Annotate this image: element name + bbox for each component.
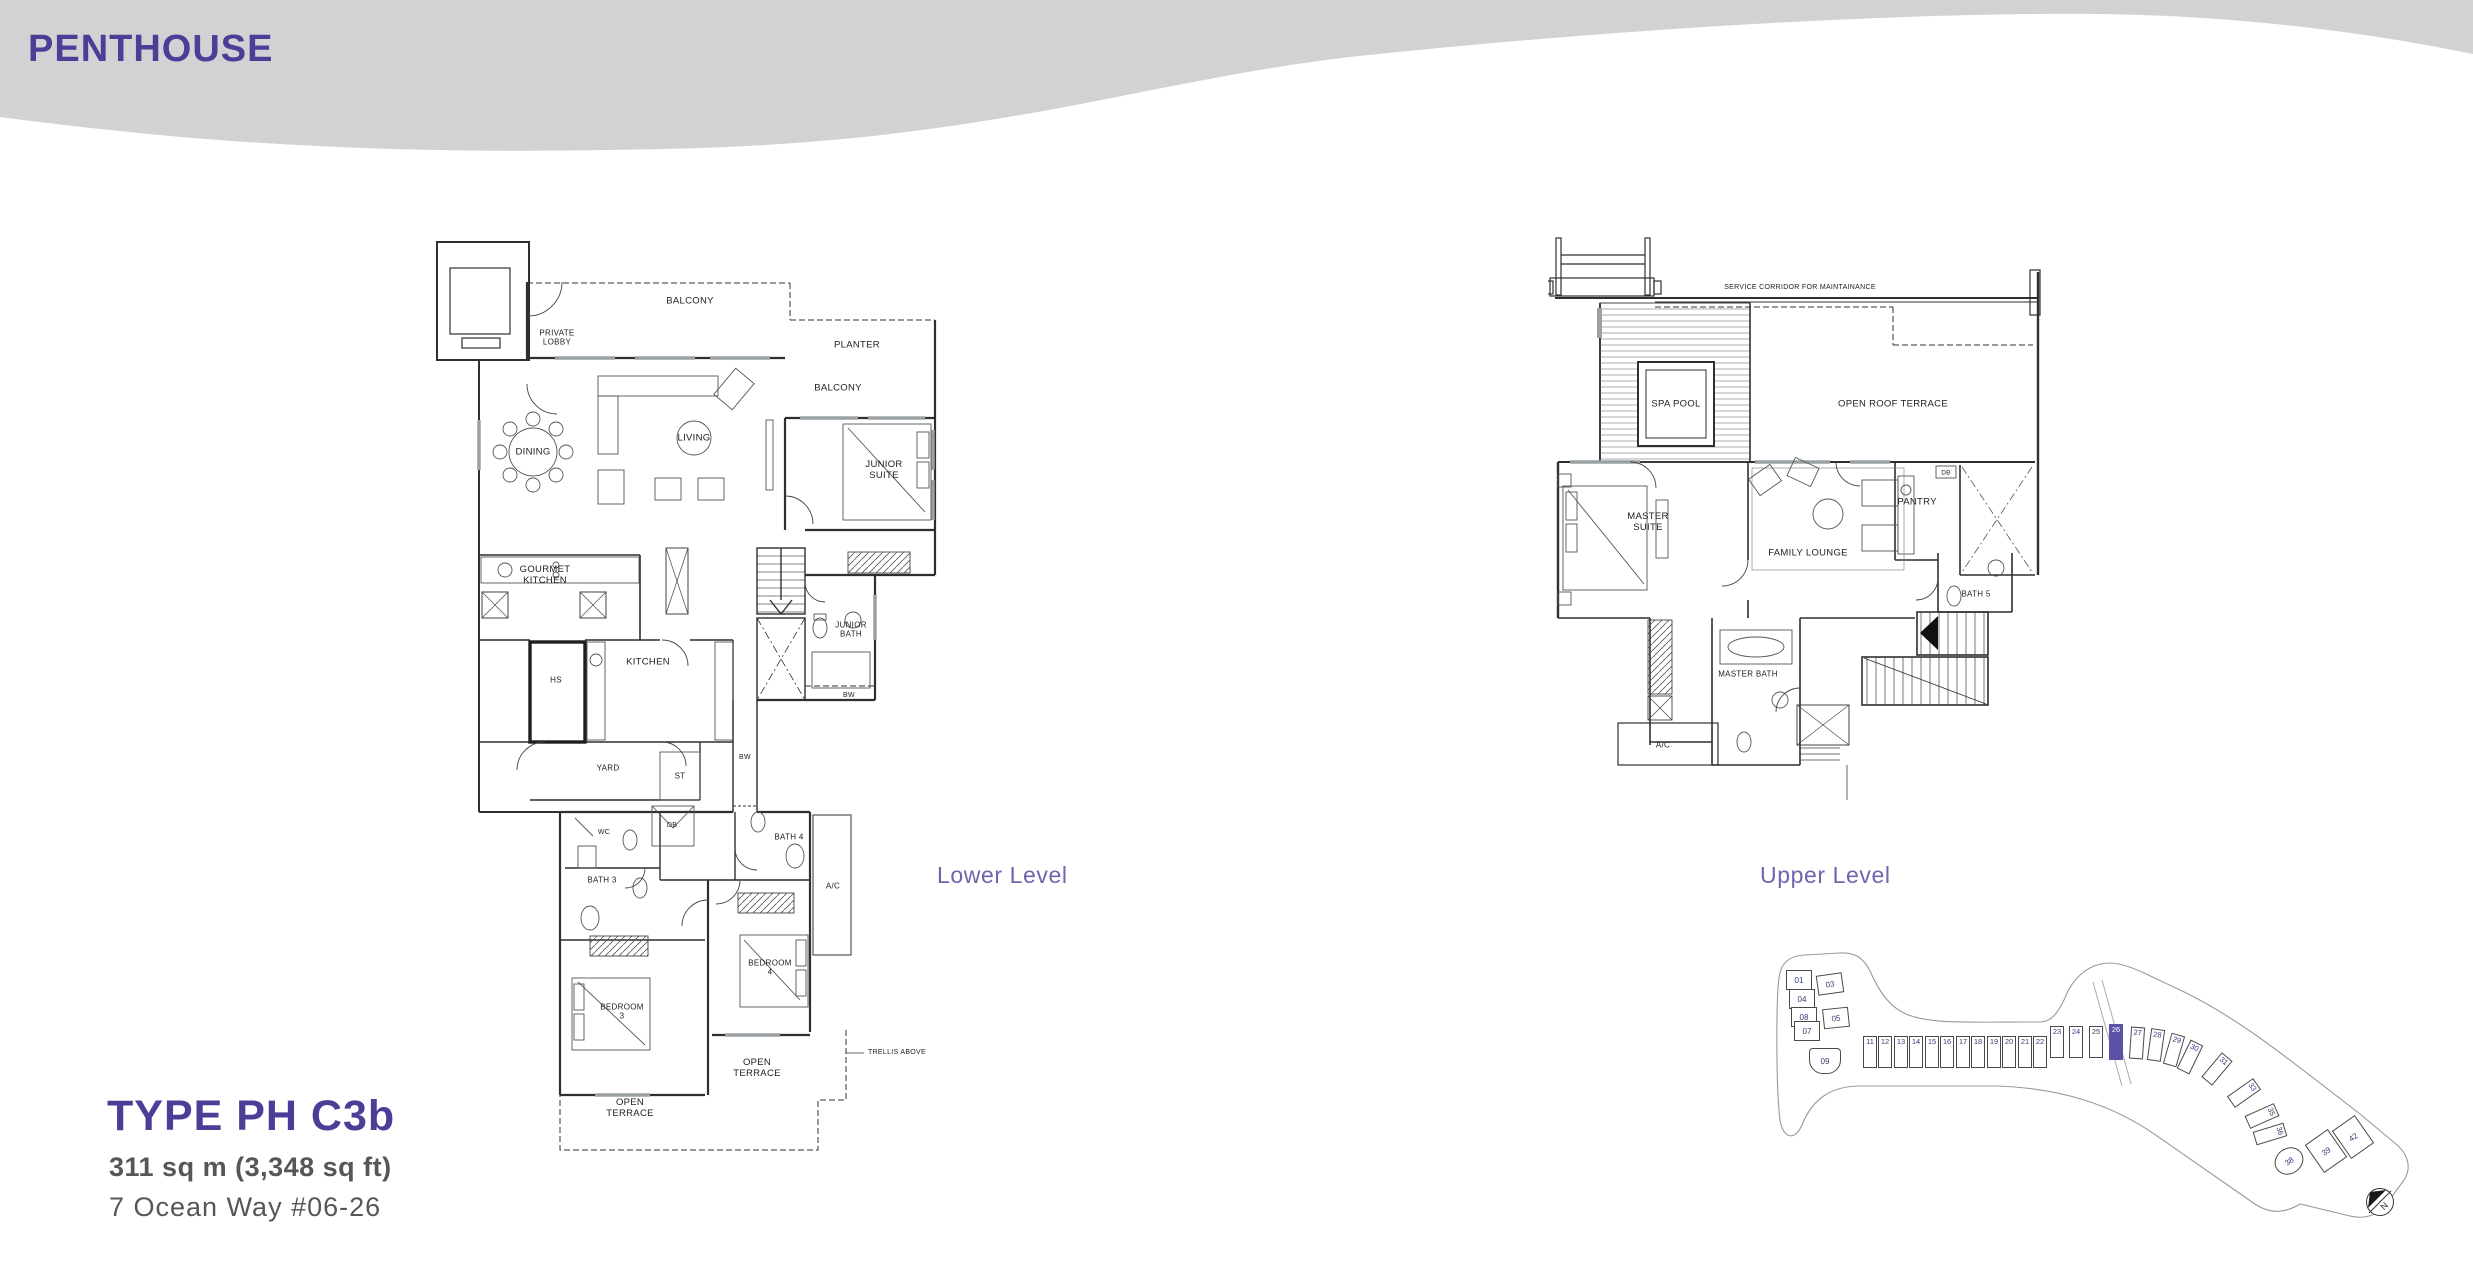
room-label-service-corridor: SERVICE CORRIDOR FOR MAINTAINANCE bbox=[1724, 284, 1876, 292]
room-label-dining: DINING bbox=[515, 446, 550, 457]
site-unit: 19 bbox=[1987, 1036, 2001, 1068]
room-label-master-suite: MASTER SUITE bbox=[1627, 511, 1668, 533]
site-unit: 14 bbox=[1909, 1036, 1923, 1068]
annotation-trellis-above: TRELLIS ABOVE bbox=[868, 1049, 926, 1057]
room-label-pantry: PANTRY bbox=[1897, 496, 1936, 507]
room-label-bw-corridor: BW bbox=[739, 754, 751, 762]
site-unit: 05 bbox=[1822, 1007, 1850, 1030]
room-label-bath3: BATH 3 bbox=[587, 875, 616, 884]
lower-level-caption: Lower Level bbox=[937, 862, 1068, 889]
room-label-st: ST bbox=[675, 771, 686, 780]
site-unit: 13 bbox=[1894, 1036, 1908, 1068]
room-label-master-bath: MASTER BATH bbox=[1718, 669, 1778, 678]
room-label-open-terrace-left: OPEN TERRACE bbox=[606, 1097, 654, 1119]
site-unit: 16 bbox=[1940, 1036, 1954, 1068]
room-label-bath4: BATH 4 bbox=[774, 832, 803, 841]
room-label-living: LIVING bbox=[678, 432, 711, 443]
room-label-private-lobby: PRIVATE LOBBY bbox=[539, 329, 574, 348]
brochure-page: PENTHOUSE bbox=[0, 0, 2473, 1265]
room-label-yard: YARD bbox=[597, 763, 620, 772]
room-label-db: DB bbox=[667, 822, 677, 830]
site-unit: 04 bbox=[1789, 989, 1815, 1009]
unit-address: 7 Ocean Way #06-26 bbox=[109, 1192, 381, 1223]
room-label-family-lounge: FAMILY LOUNGE bbox=[1768, 547, 1848, 558]
site-unit-highlighted: 26 bbox=[2109, 1024, 2123, 1060]
room-label-bath5: BATH 5 bbox=[1961, 589, 1990, 598]
room-label-ac-lower: A/C bbox=[826, 881, 840, 890]
unit-type-title: TYPE PH C3b bbox=[107, 1092, 395, 1141]
upper-floor-plan-drawing bbox=[1548, 228, 2045, 800]
site-unit: 01 bbox=[1786, 970, 1812, 990]
site-unit: 09 bbox=[1809, 1048, 1841, 1074]
site-unit: 03 bbox=[1816, 972, 1845, 995]
site-unit: 22 bbox=[2033, 1036, 2047, 1068]
upper-level-caption: Upper Level bbox=[1760, 862, 1891, 889]
room-label-balcony-right: BALCONY bbox=[814, 382, 862, 393]
site-unit: 11 bbox=[1863, 1036, 1877, 1068]
room-label-bedroom4: BEDROOM 4 bbox=[748, 959, 791, 978]
site-unit: 23 bbox=[2050, 1026, 2064, 1058]
room-label-bedroom3: BEDROOM 3 bbox=[600, 1003, 643, 1022]
room-label-junior-suite: JUNIOR SUITE bbox=[865, 459, 902, 481]
room-label-bw-bay: BW bbox=[843, 692, 855, 700]
site-unit: 15 bbox=[1925, 1036, 1939, 1068]
site-unit: 21 bbox=[2018, 1036, 2032, 1068]
lower-floor-plan-drawing bbox=[430, 225, 995, 1170]
page-title: PENTHOUSE bbox=[28, 28, 273, 71]
room-label-spa-pool: SPA POOL bbox=[1651, 398, 1700, 409]
header-wave-band bbox=[0, 0, 2473, 170]
room-label-wc: WC bbox=[598, 829, 610, 837]
room-label-kitchen: KITCHEN bbox=[626, 656, 670, 667]
site-unit: 18 bbox=[1971, 1036, 1985, 1068]
site-key-plan-drawing bbox=[1772, 948, 2424, 1250]
site-unit: 24 bbox=[2069, 1026, 2083, 1058]
room-label-hs: HS bbox=[550, 675, 562, 684]
site-unit: 17 bbox=[1956, 1036, 1970, 1068]
site-unit: 20 bbox=[2002, 1036, 2016, 1068]
room-label-balcony-top: BALCONY bbox=[666, 295, 714, 306]
room-label-planter: PLANTER bbox=[834, 339, 880, 350]
room-label-open-roof-terrace: OPEN ROOF TERRACE bbox=[1838, 398, 1948, 409]
site-unit: 27 bbox=[2129, 1027, 2145, 1060]
room-label-db-upper: DB bbox=[1941, 469, 1950, 476]
north-arrow: N bbox=[2365, 1187, 2395, 1217]
room-label-ac-upper: A/C bbox=[1656, 740, 1670, 749]
unit-area: 311 sq m (3,348 sq ft) bbox=[109, 1152, 392, 1183]
site-unit: 25 bbox=[2089, 1026, 2103, 1058]
room-label-junior-bath: JUNIOR BATH bbox=[835, 621, 867, 640]
room-label-gourmet-kitchen: GOURMET KITCHEN bbox=[520, 564, 571, 586]
room-label-open-terrace-right: OPEN TERRACE bbox=[733, 1057, 781, 1079]
site-unit: 07 bbox=[1794, 1021, 1820, 1041]
site-unit: 12 bbox=[1878, 1036, 1892, 1068]
